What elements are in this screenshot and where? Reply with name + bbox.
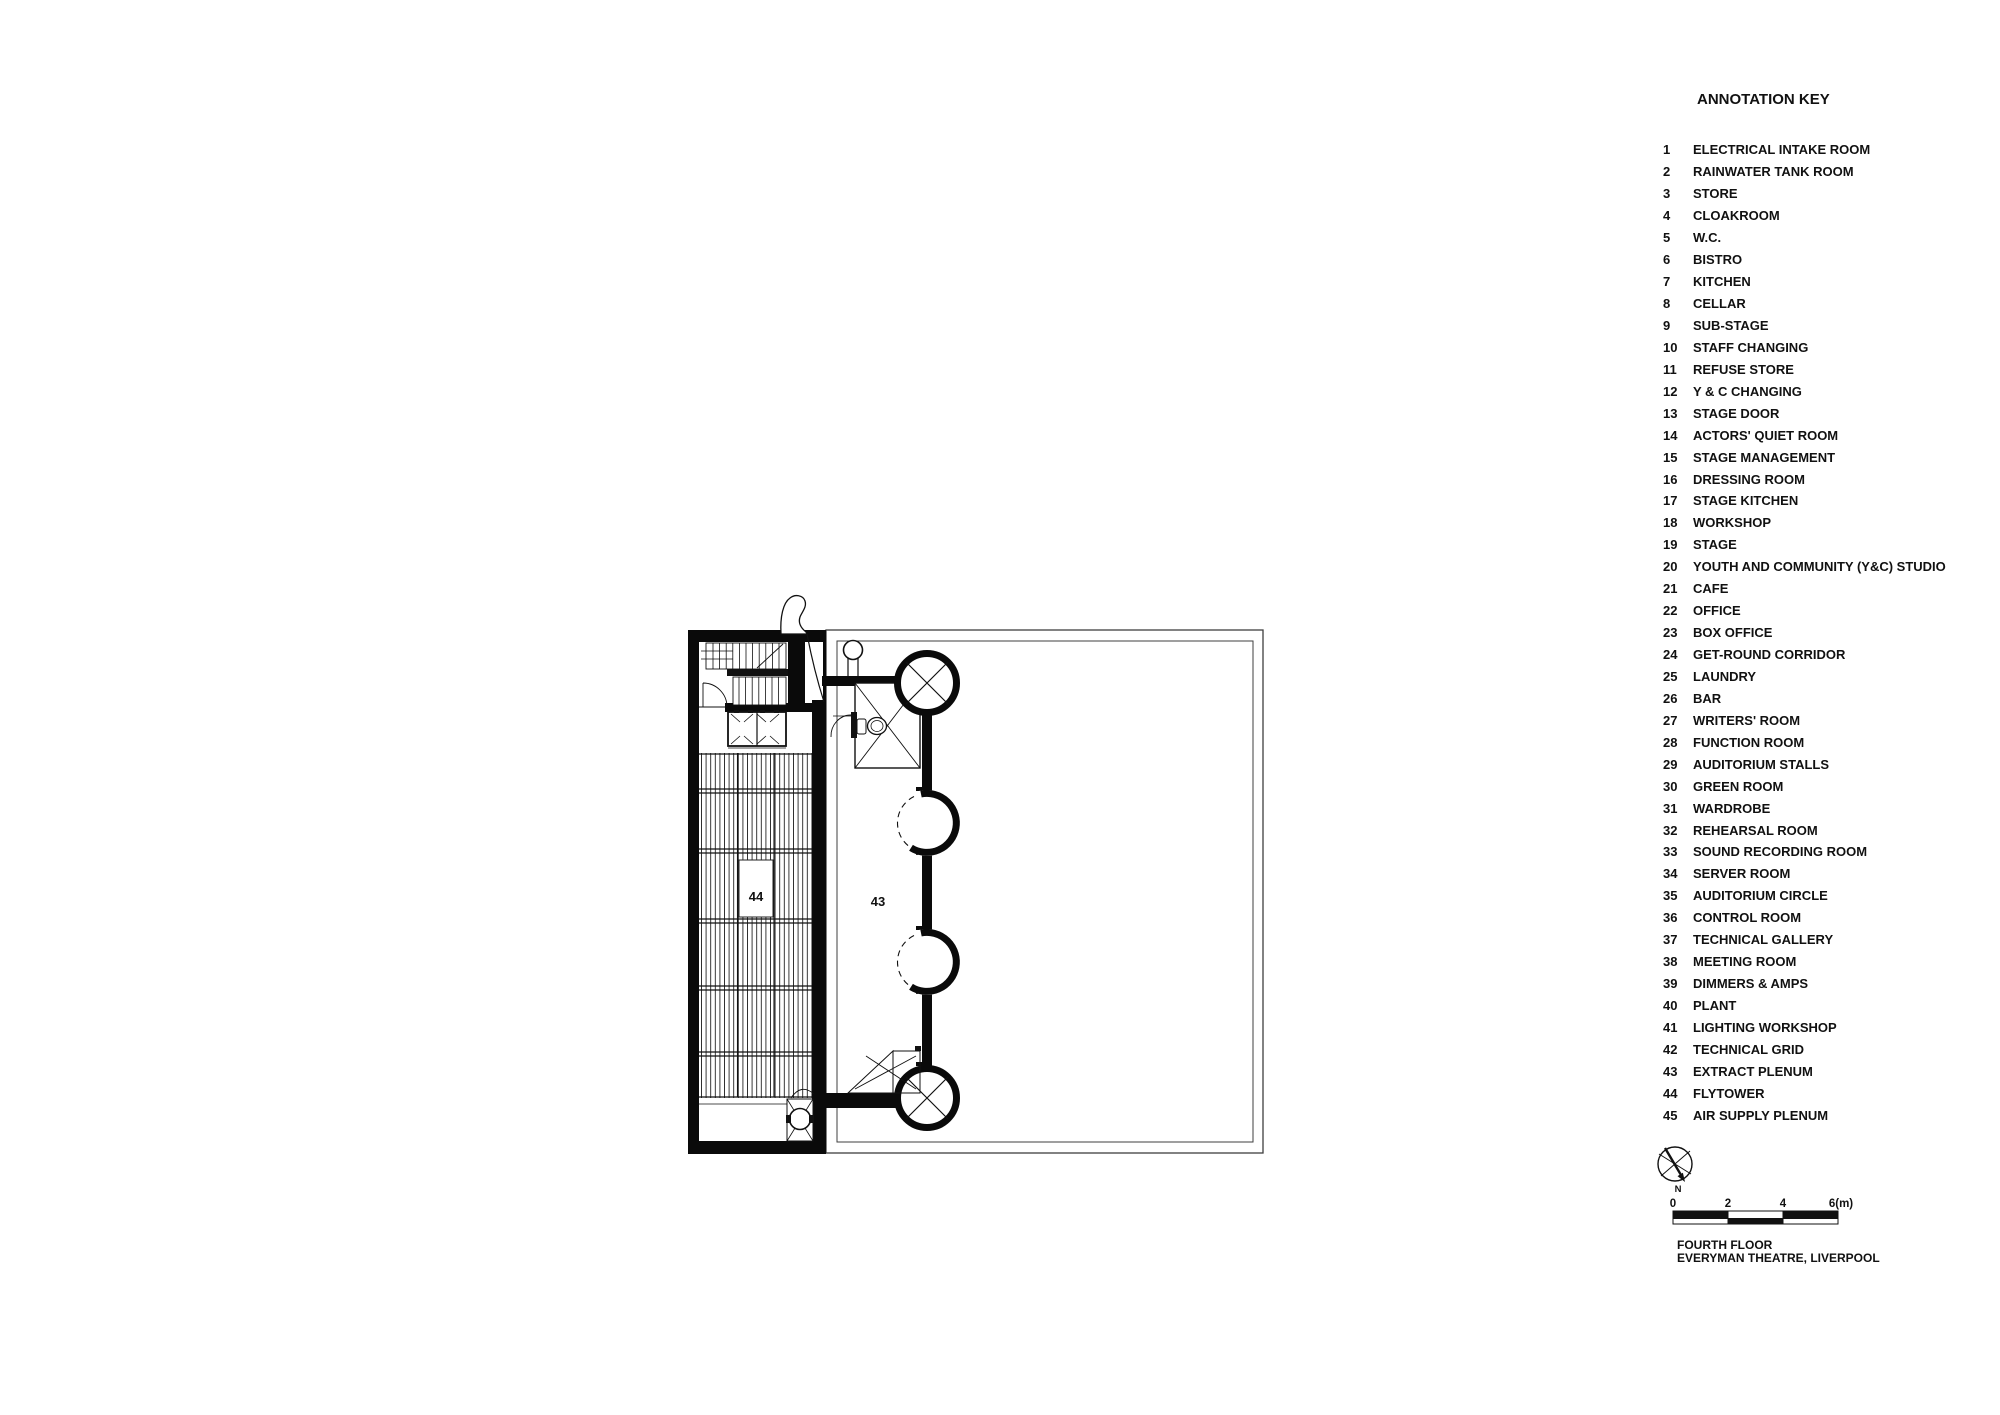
key-row-label: SOUND RECORDING ROOM (1693, 844, 1867, 859)
key-row-label: Y & C CHANGING (1693, 384, 1802, 399)
key-row-label: WARDROBE (1693, 801, 1770, 816)
key-row-label: CAFE (1693, 581, 1728, 596)
key-row: 1 ELECTRICAL INTAKE ROOM (1663, 139, 1946, 161)
staircase (701, 643, 788, 707)
key-row-number: 19 (1663, 537, 1693, 552)
key-row: 21 CAFE (1663, 578, 1946, 600)
key-row: 29 AUDITORIUM STALLS (1663, 753, 1946, 775)
key-row: 2 RAINWATER TANK ROOM (1663, 161, 1946, 183)
key-row-number: 3 (1663, 186, 1693, 201)
key-row-label: GET-ROUND CORRIDOR (1693, 647, 1845, 662)
key-row-label: TECHNICAL GALLERY (1693, 932, 1833, 947)
key-row: 45 AIR SUPPLY PLENUM (1663, 1104, 1946, 1126)
key-row: 20 YOUTH AND COMMUNITY (Y&C) STUDIO (1663, 556, 1946, 578)
key-row-label: BISTRO (1693, 252, 1742, 267)
key-row-number: 13 (1663, 406, 1693, 421)
flytower-grid (699, 753, 812, 1098)
key-row-label: STAGE DOOR (1693, 406, 1779, 421)
drum-3 (894, 929, 960, 995)
key-row: 26 BAR (1663, 687, 1946, 709)
scale-tick-2: 2 (1725, 1198, 1731, 1210)
key-row-label: PLANT (1693, 998, 1736, 1013)
scale-tick-6m: 6(m) (1829, 1198, 1853, 1210)
key-row-number: 36 (1663, 910, 1693, 925)
key-row: 5 W.C. (1663, 227, 1946, 249)
key-row-number: 18 (1663, 515, 1693, 530)
key-row: 28 FUNCTION ROOM (1663, 731, 1946, 753)
drum-1 (898, 654, 957, 713)
key-row-number: 40 (1663, 998, 1693, 1013)
key-row-number: 9 (1663, 318, 1693, 333)
key-row-number: 34 (1663, 866, 1693, 881)
key-row-number: 8 (1663, 296, 1693, 311)
scale-bar: 0 2 4 6(m) (1665, 1196, 1855, 1230)
drawing-title-line1: FOURTH FLOOR (1677, 1239, 1880, 1252)
key-row-number: 31 (1663, 801, 1693, 816)
scale-tick-4: 4 (1780, 1198, 1787, 1210)
key-row: 42 TECHNICAL GRID (1663, 1038, 1946, 1060)
key-row: 12 Y & C CHANGING (1663, 380, 1946, 402)
key-row-label: REHEARSAL ROOM (1693, 823, 1818, 838)
key-row-number: 10 (1663, 340, 1693, 355)
key-row-label: SUB-STAGE (1693, 318, 1769, 333)
north-label: N (1675, 1184, 1682, 1195)
key-row: 13 STAGE DOOR (1663, 402, 1946, 424)
key-row-label: ELECTRICAL INTAKE ROOM (1693, 142, 1870, 157)
key-row: 17 STAGE KITCHEN (1663, 490, 1946, 512)
key-row-label: YOUTH AND COMMUNITY (Y&C) STUDIO (1693, 559, 1946, 574)
annotation-key-title: ANNOTATION KEY (1697, 91, 1830, 108)
key-row-number: 45 (1663, 1108, 1693, 1123)
key-row-number: 35 (1663, 888, 1693, 903)
key-row-label: CELLAR (1693, 296, 1746, 311)
key-row: 34 SERVER ROOM (1663, 863, 1946, 885)
key-row-label: SERVER ROOM (1693, 866, 1790, 881)
key-row-number: 27 (1663, 713, 1693, 728)
lift (728, 710, 786, 748)
key-row-label: LAUNDRY (1693, 669, 1756, 684)
key-row-number: 17 (1663, 493, 1693, 508)
key-row: 44 FLYTOWER (1663, 1082, 1946, 1104)
key-row-number: 43 (1663, 1064, 1693, 1079)
key-row-label: STAGE KITCHEN (1693, 493, 1798, 508)
drawing-title-line2: EVERYMAN THEATRE, LIVERPOOL (1677, 1252, 1880, 1265)
key-row: 43 EXTRACT PLENUM (1663, 1060, 1946, 1082)
key-row-number: 44 (1663, 1086, 1693, 1101)
key-row: 24 GET-ROUND CORRIDOR (1663, 644, 1946, 666)
key-row-number: 6 (1663, 252, 1693, 267)
key-row: 23 BOX OFFICE (1663, 622, 1946, 644)
key-row-number: 29 (1663, 757, 1693, 772)
key-row: 30 GREEN ROOM (1663, 775, 1946, 797)
key-row-number: 14 (1663, 428, 1693, 443)
key-row-label: FLYTOWER (1693, 1086, 1765, 1101)
key-row-number: 12 (1663, 384, 1693, 399)
key-row-number: 24 (1663, 647, 1693, 662)
key-row-label: REFUSE STORE (1693, 362, 1794, 377)
drum-4 (898, 1069, 957, 1128)
key-row: 7 KITCHEN (1663, 271, 1946, 293)
key-row: 41 LIGHTING WORKSHOP (1663, 1017, 1946, 1039)
key-row-number: 5 (1663, 230, 1693, 245)
key-row-label: ACTORS' QUIET ROOM (1693, 428, 1838, 443)
key-row: 32 REHEARSAL ROOM (1663, 819, 1946, 841)
key-row-number: 33 (1663, 844, 1693, 859)
key-row-label: TECHNICAL GRID (1693, 1042, 1804, 1057)
column-bulb (844, 641, 863, 677)
room-label-flytower: 44 (749, 889, 764, 904)
key-row-number: 39 (1663, 976, 1693, 991)
room-label-extract-plenum: 43 (871, 894, 885, 909)
key-row: 16 DRESSING ROOM (1663, 468, 1946, 490)
key-row-label: KITCHEN (1693, 274, 1751, 289)
key-row-number: 11 (1663, 362, 1693, 377)
key-row: 4 CLOAKROOM (1663, 205, 1946, 227)
key-row-label: DIMMERS & AMPS (1693, 976, 1808, 991)
key-row-label: GREEN ROOM (1693, 779, 1783, 794)
key-row-label: CONTROL ROOM (1693, 910, 1801, 925)
key-row-number: 7 (1663, 274, 1693, 289)
key-row: 8 CELLAR (1663, 293, 1946, 315)
key-row: 40 PLANT (1663, 995, 1946, 1017)
key-row-number: 26 (1663, 691, 1693, 706)
key-row-label: STAFF CHANGING (1693, 340, 1808, 355)
key-row-label: STAGE (1693, 537, 1737, 552)
key-row-label: AUDITORIUM CIRCLE (1693, 888, 1828, 903)
key-row-label: BOX OFFICE (1693, 625, 1772, 640)
key-row-number: 20 (1663, 559, 1693, 574)
key-row-number: 38 (1663, 954, 1693, 969)
key-row-number: 28 (1663, 735, 1693, 750)
floor-plan-drawing: 44 43 (640, 580, 1300, 1190)
key-row: 27 WRITERS' ROOM (1663, 709, 1946, 731)
key-row: 39 DIMMERS & AMPS (1663, 973, 1946, 995)
key-row: 38 MEETING ROOM (1663, 951, 1946, 973)
key-row: 35 AUDITORIUM CIRCLE (1663, 885, 1946, 907)
key-row-label: WORKSHOP (1693, 515, 1771, 530)
key-row-number: 2 (1663, 164, 1693, 179)
key-row-number: 42 (1663, 1042, 1693, 1057)
key-row-label: FUNCTION ROOM (1693, 735, 1804, 750)
key-row-number: 22 (1663, 603, 1693, 618)
key-row-number: 15 (1663, 450, 1693, 465)
key-row: 11 REFUSE STORE (1663, 358, 1946, 380)
key-row: 22 OFFICE (1663, 600, 1946, 622)
key-row-label: AUDITORIUM STALLS (1693, 757, 1829, 772)
key-row-number: 37 (1663, 932, 1693, 947)
key-row-number: 30 (1663, 779, 1693, 794)
toilet-icon (857, 718, 887, 735)
extract-plenum-group (822, 641, 960, 1128)
key-row: 15 STAGE MANAGEMENT (1663, 446, 1946, 468)
key-row: 10 STAFF CHANGING (1663, 336, 1946, 358)
key-row-label: STORE (1693, 186, 1738, 201)
key-row-number: 16 (1663, 472, 1693, 487)
key-row-label: RAINWATER TANK ROOM (1693, 164, 1854, 179)
key-row-label: MEETING ROOM (1693, 954, 1796, 969)
key-row-label: AIR SUPPLY PLENUM (1693, 1108, 1828, 1123)
key-row-label: DRESSING ROOM (1693, 472, 1805, 487)
key-row-number: 4 (1663, 208, 1693, 223)
key-row: 36 CONTROL ROOM (1663, 907, 1946, 929)
key-row-label: STAGE MANAGEMENT (1693, 450, 1835, 465)
north-arrow-icon: N (1648, 1139, 1704, 1197)
key-row-number: 1 (1663, 142, 1693, 157)
key-row: 37 TECHNICAL GALLERY (1663, 929, 1946, 951)
key-row-label: LIGHTING WORKSHOP (1693, 1020, 1837, 1035)
key-row-label: BAR (1693, 691, 1721, 706)
key-row: 6 BISTRO (1663, 249, 1946, 271)
key-row: 14 ACTORS' QUIET ROOM (1663, 424, 1946, 446)
key-row: 9 SUB-STAGE (1663, 315, 1946, 337)
key-row-number: 21 (1663, 581, 1693, 596)
key-row-number: 41 (1663, 1020, 1693, 1035)
key-row: 19 STAGE (1663, 534, 1946, 556)
key-row: 18 WORKSHOP (1663, 512, 1946, 534)
key-row-label: EXTRACT PLENUM (1693, 1064, 1813, 1079)
key-row-label: WRITERS' ROOM (1693, 713, 1800, 728)
drawing-title: FOURTH FLOOR EVERYMAN THEATRE, LIVERPOOL (1677, 1239, 1880, 1264)
key-row: 33 SOUND RECORDING ROOM (1663, 841, 1946, 863)
key-row-number: 23 (1663, 625, 1693, 640)
key-row-number: 25 (1663, 669, 1693, 684)
key-row: 31 WARDROBE (1663, 797, 1946, 819)
key-row-number: 32 (1663, 823, 1693, 838)
key-row-label: W.C. (1693, 230, 1721, 245)
annotation-key-list: 1 ELECTRICAL INTAKE ROOM 2 RAINWATER TAN… (1663, 139, 1946, 1126)
drum-2 (894, 790, 960, 856)
key-row-label: CLOAKROOM (1693, 208, 1780, 223)
drawing-sheet: 44 43 ANNOTATION KEY 1 ELECTRICAL INTAKE… (0, 0, 2000, 1415)
key-row: 3 STORE (1663, 183, 1946, 205)
key-row-label: OFFICE (1693, 603, 1741, 618)
scale-tick-0: 0 (1670, 1198, 1676, 1210)
key-row: 25 LAUNDRY (1663, 666, 1946, 688)
